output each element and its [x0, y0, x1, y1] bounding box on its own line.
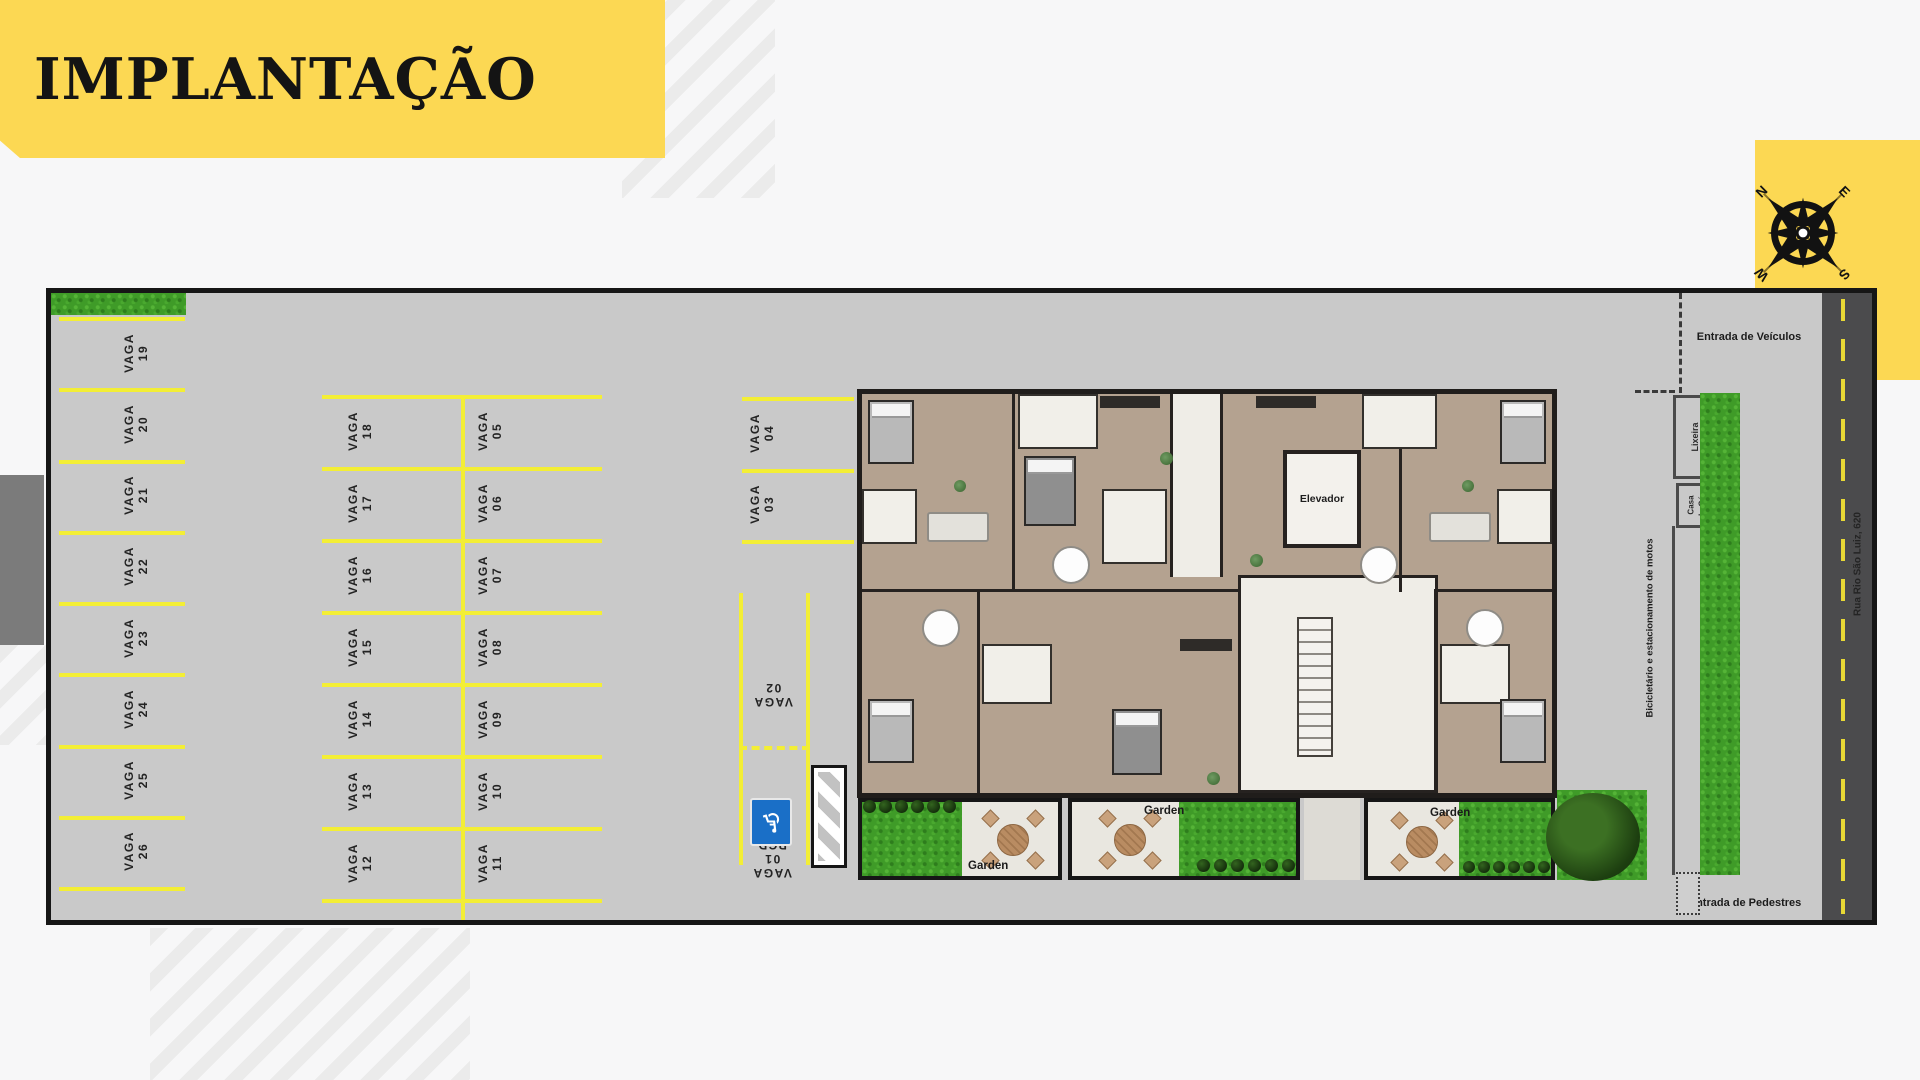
bike-moto-label: Bicicletário e estacionamento de motos: [1645, 539, 1656, 718]
entry-hall: [1238, 575, 1438, 793]
bed: [1500, 699, 1546, 763]
parking-space-label: VAGA18: [346, 411, 374, 451]
garden-chair: [1026, 809, 1044, 827]
parking-line-dashed: [739, 746, 810, 750]
parking-line: [322, 899, 602, 903]
page-title: IMPLANTAÇÃO: [34, 46, 537, 113]
bush-icon: [1478, 861, 1490, 873]
parking-line: [806, 593, 810, 865]
street-road: Rua Rio São Luiz, 620: [1822, 293, 1872, 920]
kitchen-counter: [1180, 639, 1232, 651]
stairs: [1297, 617, 1333, 757]
parking-line: [742, 540, 854, 544]
room: [1362, 394, 1437, 449]
garden-table: [1114, 824, 1146, 856]
parking-line: [742, 397, 854, 401]
wall: [1012, 394, 1015, 592]
parking-space-label: VAGA22: [122, 546, 150, 586]
bush-icon: [1265, 859, 1278, 872]
vehicle-gate-dashed-line: [1679, 293, 1682, 393]
parking-space-label: VAGA04: [748, 413, 776, 453]
garden-chair: [1390, 811, 1408, 829]
tree: [1546, 793, 1640, 881]
wall: [1438, 589, 1552, 592]
parking-space-label: VAGA12: [346, 843, 374, 883]
road-center-dashed-line: [1841, 299, 1845, 914]
room: [982, 644, 1052, 704]
parking-space-label: VAGA17: [346, 483, 374, 523]
bush-icon: [879, 800, 892, 813]
kitchen-counter: [1256, 396, 1316, 408]
trash-label: Lixeira: [1690, 422, 1700, 451]
wall: [1434, 589, 1437, 793]
garden-label: Garden: [1144, 805, 1184, 817]
bush-icon: [1523, 861, 1535, 873]
title-banner: IMPLANTAÇÃO: [0, 0, 665, 158]
garden-table: [1406, 826, 1438, 858]
bush-icon: [1231, 859, 1244, 872]
parking-space-label: VAGA14: [346, 699, 374, 739]
diagonal-stripes-decor: [150, 928, 470, 1080]
bush-icon: [895, 800, 908, 813]
parking-space-label: VAGA02: [753, 681, 793, 709]
parking-line: [322, 395, 602, 399]
plant: [954, 480, 966, 492]
plant: [1462, 480, 1474, 492]
parking-space-label: VAGA25: [122, 760, 150, 800]
fence-marks: [1635, 390, 1675, 393]
round-table: [1466, 609, 1504, 647]
parking-line: [322, 467, 602, 471]
bed: [868, 699, 914, 763]
parking-divider-line: [461, 395, 465, 920]
parking-line: [59, 317, 185, 321]
wall: [977, 589, 980, 793]
bed: [1500, 400, 1546, 464]
room: [1018, 394, 1098, 449]
bush-icon: [1493, 861, 1505, 873]
parking-line: [59, 887, 185, 891]
bed: [868, 400, 914, 464]
site-plan: VAGA02 ♿ VAGA01PCD Elevador: [46, 288, 1877, 925]
parking-line: [59, 388, 185, 392]
parking-space-label: VAGA24: [122, 689, 150, 729]
vehicle-entrance-label: Entrada de Veículos: [1697, 331, 1802, 343]
wheelchair-icon: ♿: [750, 798, 792, 846]
parking-line: [59, 816, 185, 820]
pcd-access-hatch: [811, 765, 847, 868]
street-name-label: Rua Rio São Luiz, 620: [1853, 512, 1864, 616]
bush-icon: [911, 800, 924, 813]
bush-icon: [1214, 859, 1227, 872]
parking-line: [742, 469, 854, 473]
parking-line: [739, 593, 743, 865]
compass-rose-icon: N E S W: [1744, 174, 1862, 292]
garden-chair: [1435, 853, 1453, 871]
parking-line: [322, 755, 602, 759]
hedge-strip: [1700, 393, 1740, 875]
garden-chair: [1026, 851, 1044, 869]
parking-line: [322, 539, 602, 543]
room: [1102, 489, 1167, 564]
parking-space-label: VAGA09: [476, 699, 504, 739]
parking-space-label: VAGA16: [346, 555, 374, 595]
parking-space-label: VAGA20: [122, 404, 150, 444]
room: [1497, 489, 1552, 544]
parking-space-label: VAGA10: [476, 771, 504, 811]
parking-line: [322, 827, 602, 831]
bush-icon: [1197, 859, 1210, 872]
garden-chair: [1390, 853, 1408, 871]
bush-icon: [1508, 861, 1520, 873]
parking-space-label: VAGA13: [346, 771, 374, 811]
plant: [1160, 452, 1173, 465]
round-table: [1052, 546, 1090, 584]
wall: [862, 589, 1241, 592]
sofa: [1429, 512, 1491, 542]
parking-line: [322, 683, 602, 687]
parking-space-label: VAGA26: [122, 831, 150, 871]
gas-label-1: Casa: [1687, 495, 1696, 514]
bed: [1024, 456, 1076, 526]
room: [862, 489, 917, 544]
garden-chair: [1098, 851, 1116, 869]
parking-space-label: VAGA05: [476, 411, 504, 451]
garden-label: Garden: [968, 860, 1008, 872]
parking-space-label: VAGA23: [122, 618, 150, 658]
parking-line: [322, 611, 602, 615]
parking-space-label: VAGA21: [122, 475, 150, 515]
parking-line: [59, 531, 185, 535]
garden-table: [997, 824, 1029, 856]
room: [1440, 644, 1510, 704]
plant: [1207, 772, 1220, 785]
parking-space-label: VAGA08: [476, 627, 504, 667]
bush-icon: [1463, 861, 1475, 873]
bush-icon: [1248, 859, 1261, 872]
grass-strip: [51, 293, 186, 315]
sofa: [927, 512, 989, 542]
kitchen-counter: [1100, 396, 1160, 408]
bush-icon: [863, 800, 876, 813]
parking-line: [59, 460, 185, 464]
bed: [1112, 709, 1162, 775]
building-floor-plan: Elevador: [857, 389, 1557, 798]
parking-space-label: VAGA06: [476, 483, 504, 523]
parking-space-label: VAGA03: [748, 484, 776, 524]
parking-line: [59, 745, 185, 749]
bush-icon: [927, 800, 940, 813]
garden-chair: [981, 809, 999, 827]
elevator-room: Elevador: [1283, 450, 1361, 548]
bush-icon: [943, 800, 956, 813]
bush-icon: [1538, 861, 1550, 873]
garden-label: Garden: [1430, 807, 1470, 819]
pedestrian-entrance-label: Entrada de Pedestres: [1689, 897, 1802, 909]
bush-icon: [1282, 859, 1295, 872]
parking-line: [59, 673, 185, 677]
parking-space-label: VAGA07: [476, 555, 504, 595]
boundary-wall: [1672, 526, 1675, 875]
parking-line: [59, 602, 185, 606]
garden-chair: [1098, 809, 1116, 827]
gray-accent-block: [0, 475, 44, 645]
elevator-label: Elevador: [1300, 493, 1344, 505]
parking-space-label: VAGA19: [122, 333, 150, 373]
round-table: [1360, 546, 1398, 584]
parking-space-label: VAGA11: [476, 843, 504, 883]
garden-chair: [1143, 851, 1161, 869]
garden-grass: [862, 802, 962, 876]
plant: [1250, 554, 1263, 567]
entry-walkway: [1304, 798, 1360, 880]
pedestrian-gate: [1676, 872, 1700, 915]
round-table: [922, 609, 960, 647]
corridor: [1170, 394, 1223, 577]
parking-space-label: VAGA15: [346, 627, 374, 667]
